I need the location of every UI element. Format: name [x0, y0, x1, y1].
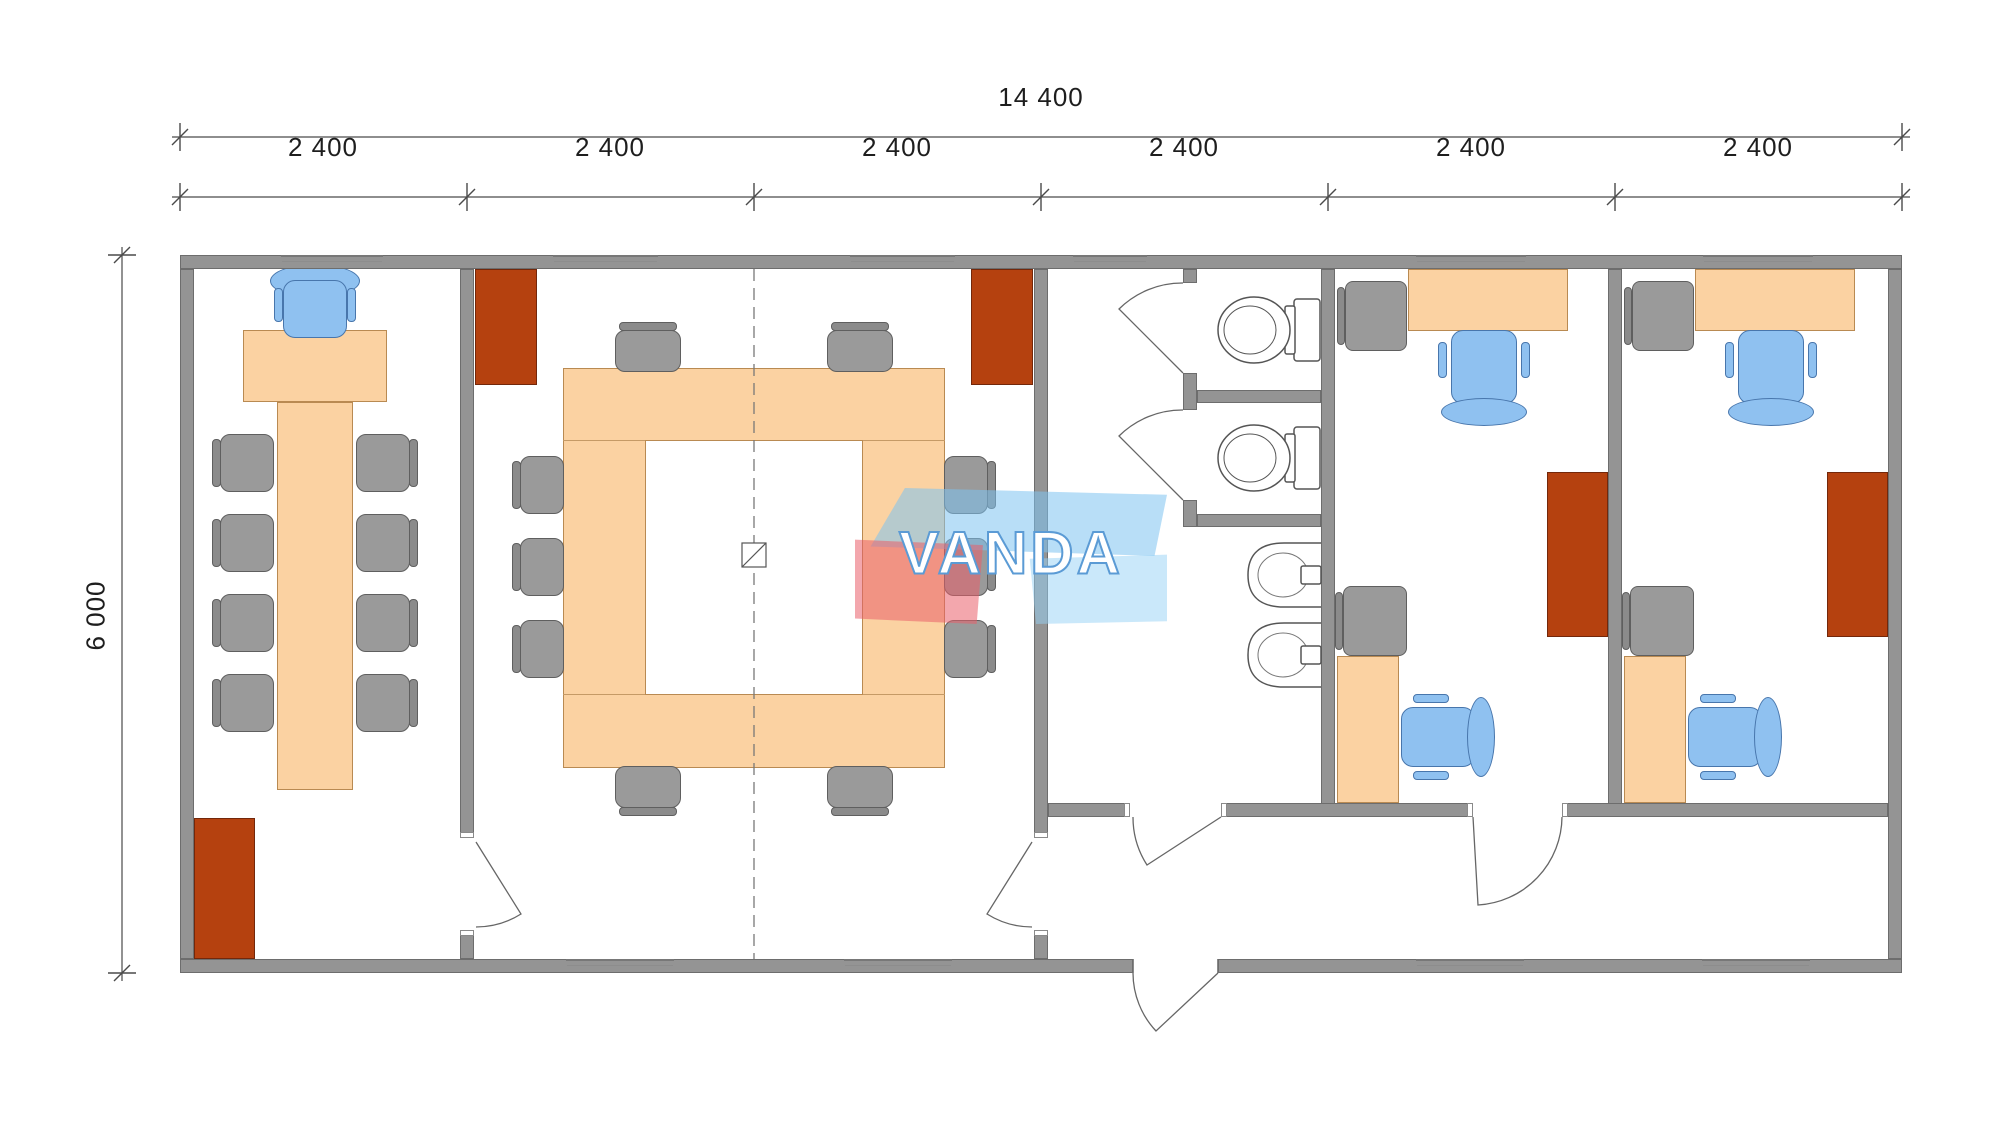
door-wc-stall2: [1119, 410, 1183, 500]
door-corridor-washroom: [1133, 817, 1221, 865]
door-room2-hall: [987, 842, 1032, 927]
doors: [476, 283, 1562, 1031]
toilet-2: [1218, 425, 1320, 491]
dimension-lines: [108, 123, 1910, 981]
plan-linework: [0, 0, 2000, 1147]
sink-1: [1248, 543, 1321, 607]
floor-box-symbol: [742, 543, 766, 567]
door-wc-stall1: [1119, 283, 1183, 373]
door-corridor-office1: [1473, 817, 1562, 905]
door-room1-room2: [476, 842, 521, 927]
floor-plan: 14 400 2 400 2 400 2 400 2 400 2 400 2 4…: [0, 0, 2000, 1147]
dim-ticks: [108, 123, 1910, 981]
sink-2: [1248, 623, 1321, 687]
toilet-1: [1218, 297, 1320, 363]
door-entrance: [1133, 973, 1218, 1031]
